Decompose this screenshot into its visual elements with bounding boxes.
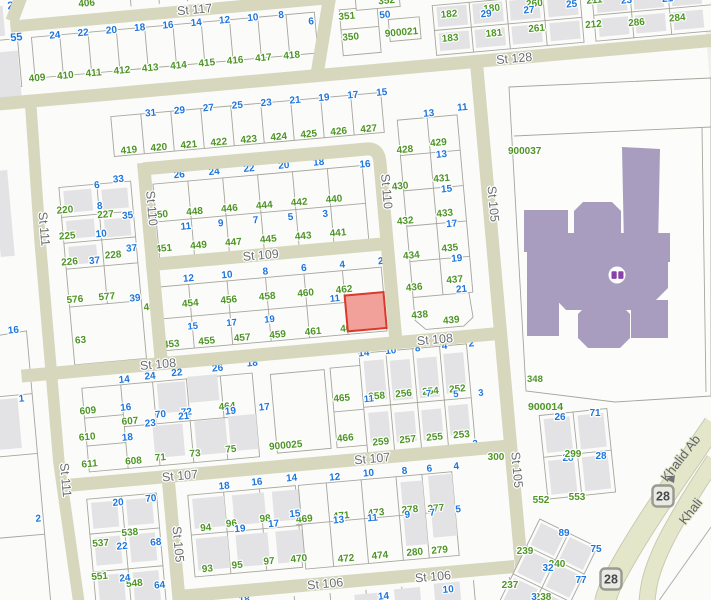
svg-text:70: 70 bbox=[154, 409, 166, 421]
svg-text:538: 538 bbox=[121, 527, 139, 539]
svg-text:422: 422 bbox=[210, 136, 228, 148]
svg-text:19: 19 bbox=[451, 253, 463, 265]
svg-text:300: 300 bbox=[488, 452, 505, 463]
svg-text:10: 10 bbox=[363, 468, 375, 480]
svg-text:26: 26 bbox=[554, 412, 566, 423]
svg-text:423: 423 bbox=[240, 134, 258, 146]
svg-text:13: 13 bbox=[435, 149, 447, 161]
svg-text:465: 465 bbox=[333, 392, 351, 404]
svg-text:427: 427 bbox=[360, 123, 378, 135]
svg-text:454: 454 bbox=[182, 298, 200, 310]
svg-text:470: 470 bbox=[290, 553, 308, 565]
svg-text:458: 458 bbox=[258, 291, 276, 303]
svg-text:449: 449 bbox=[190, 240, 208, 252]
svg-text:3: 3 bbox=[531, 592, 537, 600]
svg-text:37: 37 bbox=[126, 243, 138, 255]
svg-text:24: 24 bbox=[119, 573, 131, 585]
svg-text:25: 25 bbox=[231, 100, 243, 112]
svg-text:12: 12 bbox=[219, 15, 231, 27]
svg-text:537: 537 bbox=[92, 537, 110, 549]
svg-text:419: 419 bbox=[120, 144, 138, 156]
svg-text:33: 33 bbox=[112, 174, 124, 186]
svg-text:15: 15 bbox=[187, 321, 199, 333]
svg-text:577: 577 bbox=[98, 291, 116, 303]
svg-text:16: 16 bbox=[359, 159, 371, 171]
svg-text:17: 17 bbox=[347, 89, 359, 101]
svg-text:181: 181 bbox=[485, 27, 503, 39]
svg-text:299: 299 bbox=[565, 449, 582, 460]
svg-text:16: 16 bbox=[120, 402, 132, 414]
svg-text:438: 438 bbox=[411, 309, 429, 321]
svg-text:442: 442 bbox=[290, 196, 308, 208]
svg-text:19: 19 bbox=[318, 92, 330, 104]
svg-text:15: 15 bbox=[289, 508, 301, 520]
svg-text:425: 425 bbox=[300, 128, 318, 140]
svg-text:22: 22 bbox=[116, 541, 128, 553]
svg-text:14: 14 bbox=[118, 374, 130, 386]
svg-text:413: 413 bbox=[141, 62, 159, 74]
svg-text:11: 11 bbox=[363, 393, 375, 405]
svg-text:457: 457 bbox=[233, 332, 251, 344]
svg-text:17: 17 bbox=[268, 518, 280, 530]
svg-text:12: 12 bbox=[329, 472, 341, 484]
svg-text:16: 16 bbox=[251, 477, 263, 489]
svg-text:609: 609 bbox=[79, 405, 97, 417]
svg-text:95: 95 bbox=[231, 560, 243, 572]
svg-text:97: 97 bbox=[263, 556, 275, 568]
svg-text:607: 607 bbox=[121, 415, 139, 427]
svg-text:71: 71 bbox=[589, 408, 601, 419]
svg-text:228: 228 bbox=[104, 249, 122, 261]
svg-text:21: 21 bbox=[178, 411, 190, 423]
svg-text:25: 25 bbox=[566, 0, 578, 11]
svg-text:432: 432 bbox=[396, 215, 414, 227]
svg-text:611: 611 bbox=[81, 458, 98, 470]
svg-text:19: 19 bbox=[224, 406, 236, 418]
svg-text:24: 24 bbox=[49, 30, 61, 42]
svg-text:15: 15 bbox=[441, 184, 453, 196]
svg-text:351: 351 bbox=[338, 10, 356, 22]
svg-text:35: 35 bbox=[122, 210, 134, 222]
svg-text:64: 64 bbox=[154, 580, 166, 592]
svg-text:551: 551 bbox=[91, 571, 109, 583]
svg-text:11: 11 bbox=[367, 512, 379, 524]
svg-text:416: 416 bbox=[226, 55, 244, 67]
svg-text:19: 19 bbox=[234, 523, 246, 535]
svg-text:225: 225 bbox=[58, 230, 76, 242]
svg-text:446: 446 bbox=[221, 203, 239, 215]
svg-text:21: 21 bbox=[289, 95, 301, 107]
svg-text:94: 94 bbox=[200, 522, 212, 534]
svg-text:77: 77 bbox=[575, 575, 587, 586]
svg-text:28: 28 bbox=[604, 573, 618, 587]
svg-text:50: 50 bbox=[379, 9, 391, 21]
svg-text:253: 253 bbox=[453, 429, 471, 441]
svg-text:279: 279 bbox=[431, 544, 449, 556]
svg-text:70: 70 bbox=[145, 493, 157, 505]
svg-text:440: 440 bbox=[325, 193, 343, 205]
svg-text:444: 444 bbox=[256, 200, 274, 212]
svg-text:460: 460 bbox=[297, 287, 315, 299]
svg-text:456: 456 bbox=[220, 294, 238, 306]
svg-text:455: 455 bbox=[198, 335, 216, 347]
svg-text:410: 410 bbox=[57, 70, 75, 82]
svg-text:418: 418 bbox=[283, 50, 301, 62]
svg-text:445: 445 bbox=[260, 233, 278, 245]
svg-text:415: 415 bbox=[198, 57, 216, 69]
svg-text:39: 39 bbox=[129, 293, 141, 305]
svg-text:13: 13 bbox=[423, 108, 435, 120]
svg-text:27: 27 bbox=[202, 102, 214, 114]
svg-text:63: 63 bbox=[75, 335, 87, 347]
svg-text:20: 20 bbox=[112, 497, 124, 509]
svg-text:466: 466 bbox=[337, 432, 355, 444]
svg-text:14: 14 bbox=[286, 472, 298, 484]
svg-text:7: 7 bbox=[426, 388, 432, 399]
svg-text:429: 429 bbox=[430, 137, 448, 149]
svg-text:55: 55 bbox=[10, 31, 23, 44]
svg-text:16: 16 bbox=[7, 325, 19, 337]
svg-text:11: 11 bbox=[457, 102, 469, 114]
svg-text:417: 417 bbox=[255, 52, 273, 64]
svg-text:10: 10 bbox=[95, 228, 107, 240]
svg-text:411: 411 bbox=[85, 67, 102, 79]
svg-text:11: 11 bbox=[180, 221, 192, 233]
svg-text:261: 261 bbox=[528, 23, 546, 35]
svg-text:552: 552 bbox=[533, 495, 550, 506]
svg-text:12: 12 bbox=[183, 273, 195, 285]
svg-text:286: 286 bbox=[628, 17, 646, 29]
svg-text:18: 18 bbox=[121, 432, 133, 444]
svg-text:420: 420 bbox=[150, 142, 168, 154]
svg-text:441: 441 bbox=[329, 227, 347, 239]
svg-text:23: 23 bbox=[260, 97, 272, 109]
svg-text:412: 412 bbox=[113, 65, 131, 77]
svg-text:610: 610 bbox=[78, 431, 96, 443]
svg-text:576: 576 bbox=[66, 294, 84, 306]
svg-text:900037: 900037 bbox=[508, 146, 542, 157]
svg-text:553: 553 bbox=[569, 492, 586, 503]
svg-text:17: 17 bbox=[446, 218, 458, 230]
svg-text:421: 421 bbox=[180, 139, 198, 151]
svg-text:183: 183 bbox=[441, 32, 459, 44]
svg-text:239: 239 bbox=[517, 546, 534, 557]
svg-text:21: 21 bbox=[456, 284, 468, 296]
svg-text:257: 257 bbox=[399, 434, 417, 446]
svg-text:212: 212 bbox=[585, 19, 603, 31]
svg-text:461: 461 bbox=[304, 326, 322, 338]
svg-text:443: 443 bbox=[294, 230, 312, 242]
svg-text:11: 11 bbox=[329, 293, 341, 305]
svg-text:14: 14 bbox=[190, 17, 202, 29]
svg-text:27: 27 bbox=[523, 5, 535, 17]
svg-text:474: 474 bbox=[371, 550, 389, 562]
svg-text:20: 20 bbox=[105, 25, 117, 37]
svg-text:10: 10 bbox=[442, 584, 454, 596]
svg-text:255: 255 bbox=[426, 431, 444, 443]
svg-text:436: 436 bbox=[405, 282, 423, 294]
svg-text:23: 23 bbox=[621, 0, 633, 7]
svg-text:426: 426 bbox=[330, 126, 348, 138]
svg-text:428: 428 bbox=[396, 144, 414, 156]
svg-text:13: 13 bbox=[333, 514, 345, 526]
svg-text:29: 29 bbox=[174, 105, 186, 117]
svg-text:256: 256 bbox=[395, 388, 413, 400]
svg-text:409: 409 bbox=[28, 72, 46, 84]
svg-text:16: 16 bbox=[162, 20, 174, 32]
svg-text:237: 237 bbox=[502, 580, 519, 591]
svg-text:434: 434 bbox=[403, 250, 421, 262]
svg-text:226: 226 bbox=[61, 256, 79, 268]
svg-text:15: 15 bbox=[376, 87, 388, 99]
svg-text:22: 22 bbox=[77, 27, 89, 39]
svg-text:32: 32 bbox=[542, 563, 554, 574]
svg-text:182: 182 bbox=[440, 8, 458, 20]
svg-text:18: 18 bbox=[218, 480, 230, 492]
svg-text:424: 424 bbox=[270, 131, 288, 143]
svg-text:439: 439 bbox=[442, 314, 460, 326]
svg-text:284: 284 bbox=[669, 12, 687, 24]
svg-text:10: 10 bbox=[247, 12, 259, 24]
svg-text:28: 28 bbox=[595, 451, 607, 462]
svg-text:18: 18 bbox=[134, 22, 146, 34]
svg-text:348: 348 bbox=[527, 374, 543, 385]
svg-text:406: 406 bbox=[78, 0, 96, 10]
svg-text:17: 17 bbox=[226, 317, 238, 329]
svg-text:238: 238 bbox=[535, 592, 552, 600]
svg-text:68: 68 bbox=[150, 537, 162, 549]
svg-text:37: 37 bbox=[89, 255, 101, 267]
svg-text:89: 89 bbox=[558, 528, 570, 539]
svg-text:448: 448 bbox=[186, 206, 204, 218]
svg-text:75: 75 bbox=[590, 544, 602, 555]
svg-text:17: 17 bbox=[258, 402, 270, 414]
svg-text:414: 414 bbox=[170, 60, 188, 72]
svg-text:459: 459 bbox=[269, 329, 287, 341]
svg-text:93: 93 bbox=[201, 563, 213, 575]
svg-text:220: 220 bbox=[56, 204, 74, 216]
svg-text:71: 71 bbox=[154, 452, 166, 464]
svg-text:75: 75 bbox=[225, 444, 237, 456]
svg-text:73: 73 bbox=[189, 448, 201, 460]
svg-text:14: 14 bbox=[378, 591, 390, 600]
svg-text:3: 3 bbox=[478, 388, 484, 399]
svg-text:350: 350 bbox=[342, 31, 360, 43]
svg-text:10: 10 bbox=[221, 269, 233, 281]
svg-text:19: 19 bbox=[264, 314, 276, 326]
svg-text:608: 608 bbox=[125, 455, 143, 467]
svg-text:259: 259 bbox=[372, 436, 390, 448]
svg-text:447: 447 bbox=[225, 236, 243, 248]
svg-text:28: 28 bbox=[656, 490, 670, 504]
svg-text:280: 280 bbox=[406, 547, 424, 559]
svg-text:29: 29 bbox=[480, 8, 492, 20]
svg-text:472: 472 bbox=[337, 553, 355, 565]
svg-text:31: 31 bbox=[145, 108, 157, 120]
